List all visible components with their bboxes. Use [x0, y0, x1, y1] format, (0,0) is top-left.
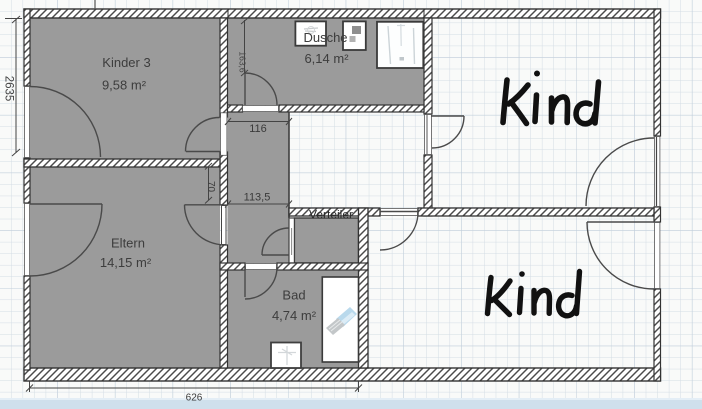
svg-text:6,14 m²: 6,14 m²	[304, 51, 349, 66]
svg-text:4,74 m²: 4,74 m²	[272, 308, 317, 323]
svg-text:Bad: Bad	[282, 288, 305, 303]
svg-text:Eltern: Eltern	[111, 236, 145, 251]
svg-text:163,6: 163,6	[237, 51, 247, 73]
svg-text:113,5: 113,5	[244, 192, 271, 204]
svg-text:70: 70	[205, 181, 216, 193]
svg-text:Dusche: Dusche	[303, 30, 347, 45]
svg-text:9,58 m²: 9,58 m²	[102, 78, 147, 93]
svg-text:116: 116	[249, 123, 267, 135]
svg-text:Kinder 3: Kinder 3	[102, 55, 150, 70]
svg-text:Verteiler: Verteiler	[309, 208, 353, 222]
svg-text:626: 626	[186, 393, 203, 404]
svg-text:14,15 m²: 14,15 m²	[100, 255, 152, 270]
svg-text:2635: 2635	[2, 76, 14, 102]
